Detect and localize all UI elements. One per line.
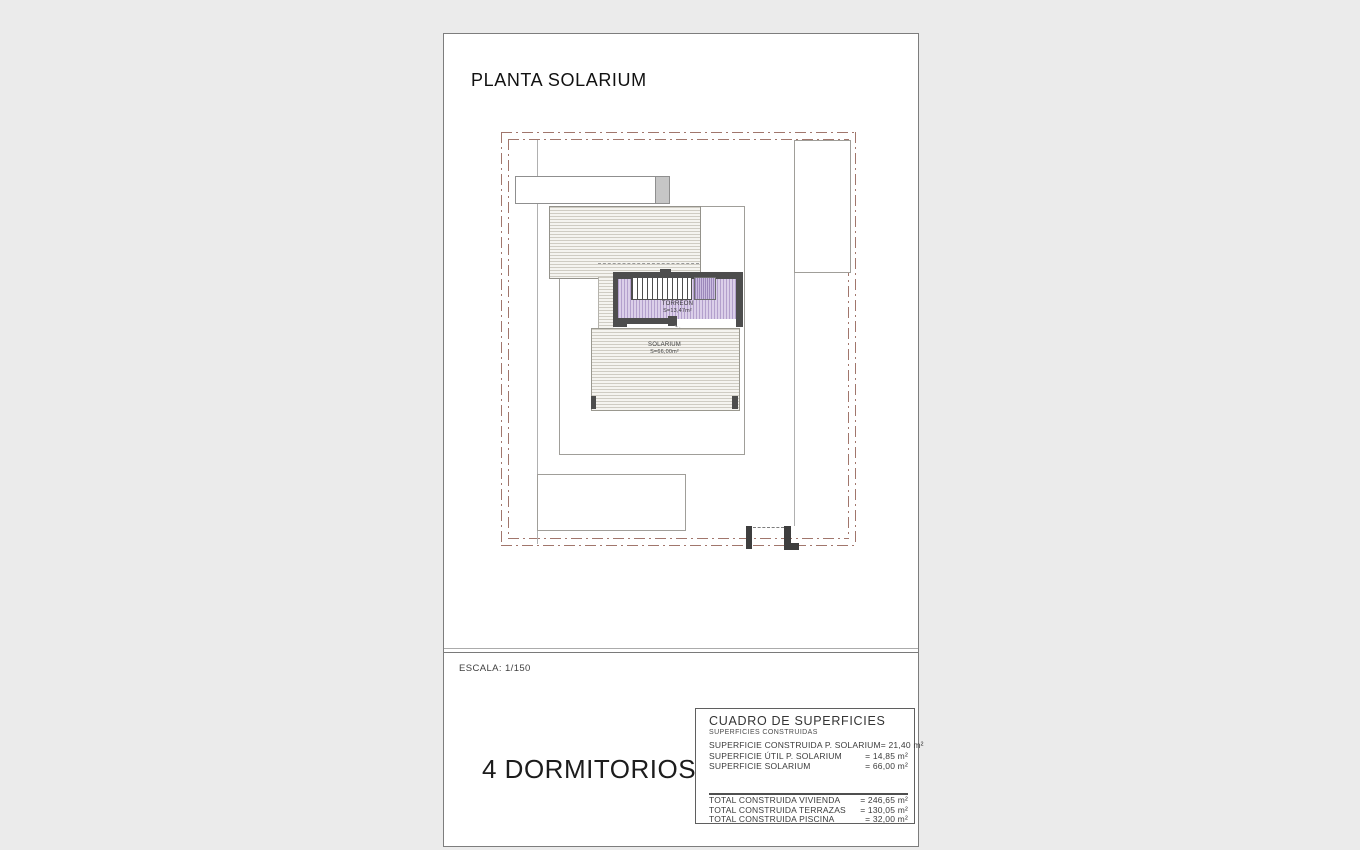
pergola-bar-cap	[655, 177, 669, 203]
solarium-wall-cap-right	[732, 396, 738, 409]
bedrooms-caption: 4 DORMITORIOS	[482, 754, 696, 785]
row-value: = 14,85 m²	[865, 751, 908, 762]
desktop-background: { "sheet": { "title": "PLANTA SOLARIUM",…	[0, 0, 1360, 850]
pergola-bar	[515, 176, 670, 204]
gate-post-right-foot	[784, 543, 799, 550]
roof-hidden-line	[598, 263, 699, 264]
solarium-hatch	[591, 328, 740, 411]
row-label: SUPERFICIE SOLARIUM	[709, 761, 811, 772]
row-label: TOTAL CONSTRUIDA PISCINA	[709, 815, 835, 825]
solarium-name: SOLARIUM	[591, 342, 738, 349]
torreon-wall-right	[736, 272, 743, 327]
surfaces-table-subtitle: SUPERFICIES CONSTRUIDAS	[709, 729, 818, 736]
plot-boundary-outer-left	[501, 132, 502, 546]
stair-upper-flight	[694, 277, 716, 300]
page-title: PLANTA SOLARIUM	[471, 70, 647, 91]
totals-rows: TOTAL CONSTRUIDA VIVIENDA = 246,65 m² TO…	[709, 796, 908, 825]
sheet-divider-line-1	[444, 648, 918, 649]
row-label: SUPERFICIE CONSTRUIDA P. SOLARIUM	[709, 740, 881, 751]
plot-boundary-inner-left	[508, 139, 509, 539]
torreon-label: TORREÓN S=13,47m²	[618, 301, 737, 315]
surfaces-table-title: CUADRO DE SUPERFICIES	[709, 714, 886, 728]
solarium-label: SOLARIUM S=66,00m²	[591, 342, 738, 356]
row-value: = 66,00 m²	[865, 761, 908, 772]
gate-dashed-line	[753, 527, 784, 528]
solarium-wall-cap-left	[591, 396, 596, 409]
drawing-sheet: PLANTA SOLARIUM TORREÓN S=13,47m² SOLARI…	[443, 33, 919, 847]
table-row: SUPERFICIE SOLARIUM = 66,00 m²	[709, 761, 908, 772]
right-annex-outline	[794, 140, 851, 273]
plot-boundary-inner-bottom	[508, 538, 849, 539]
row-label: SUPERFICIE ÚTIL P. SOLARIUM	[709, 751, 842, 762]
scale-note: ESCALA: 1/150	[459, 663, 531, 674]
roof-hatch-strip	[598, 277, 614, 328]
table-row: SUPERFICIE CONSTRUIDA P. SOLARIUM = 21,4…	[709, 740, 908, 751]
plot-boundary-outer-right	[855, 132, 856, 546]
stair-treads	[631, 277, 692, 300]
plot-boundary-outer-top	[501, 132, 856, 133]
right-fence-line	[794, 272, 795, 526]
row-value: = 32,00 m²	[865, 815, 908, 825]
gate-post-left	[746, 526, 752, 549]
roof-hatch	[549, 206, 701, 279]
sheet-divider-line-2	[444, 652, 918, 653]
table-row: TOTAL CONSTRUIDA PISCINA = 32,00 m²	[709, 815, 908, 825]
torreon-wall-notch	[613, 322, 627, 327]
torreon-name: TORREÓN	[618, 301, 737, 308]
row-value: = 21,40 m²	[881, 740, 924, 751]
torreon-wall-bump	[660, 269, 671, 272]
table-row: SUPERFICIE ÚTIL P. SOLARIUM = 14,85 m²	[709, 751, 908, 762]
solarium-area: S=66,00m²	[591, 349, 738, 356]
torreon-area: S=13,47m²	[618, 308, 737, 315]
surfaces-rows: SUPERFICIE CONSTRUIDA P. SOLARIUM = 21,4…	[709, 740, 908, 772]
porch-outline	[537, 474, 686, 531]
plot-boundary-outer-bottom	[501, 545, 856, 546]
surfaces-table: CUADRO DE SUPERFICIES SUPERFICIES CONSTR…	[695, 708, 915, 824]
